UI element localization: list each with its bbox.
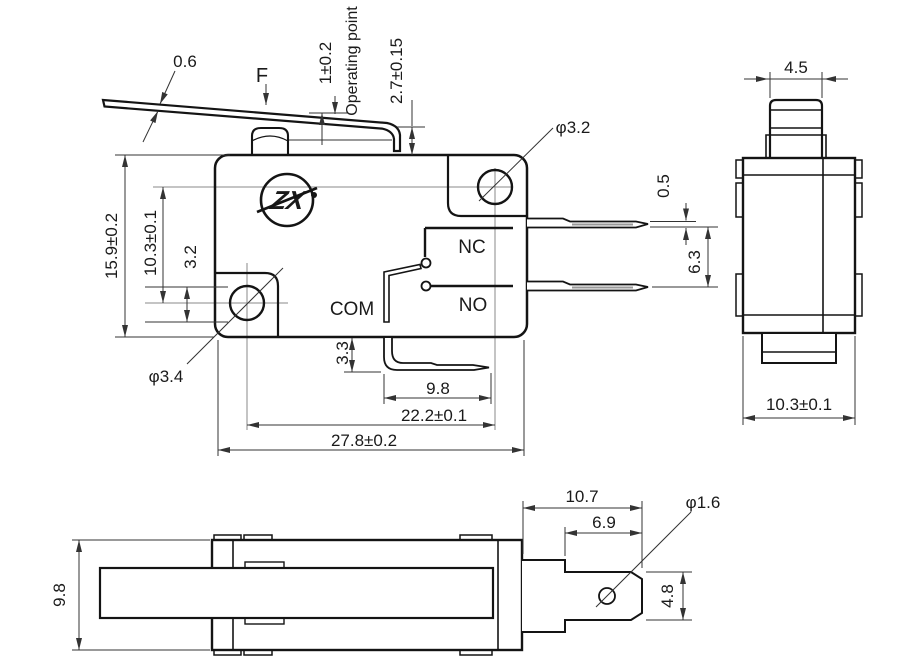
- dim-free-position: 2.7±0.15: [387, 38, 406, 104]
- no-terminal: [527, 282, 648, 291]
- label-com: COM: [330, 299, 374, 320]
- dim-top-hole: φ3.2: [556, 118, 591, 137]
- dim-blade-width: 4.8: [658, 584, 677, 608]
- dim-bottom-hole: φ3.4: [149, 367, 184, 386]
- dim-hole-offset: 3.2: [181, 245, 200, 269]
- dim-button-width: 4.5: [784, 58, 808, 77]
- dim-blade-length: 6.9: [592, 513, 616, 532]
- bottom-terminal: [522, 560, 642, 632]
- side-bottom-boss: [762, 333, 836, 363]
- dim-terminal-thickness: 0.5: [654, 174, 673, 198]
- micro-switch-drawing: ZX: [0, 0, 901, 672]
- dim-terminal-spacing: 6.3: [685, 250, 704, 274]
- front-dimension-lines: [115, 71, 718, 456]
- side-body: [736, 158, 862, 363]
- drawing-svg: ZX: [0, 0, 901, 672]
- contact-schematic: [384, 228, 513, 322]
- nc-terminal: [527, 219, 648, 228]
- brand-logo: ZX: [257, 174, 317, 226]
- force-label: F: [256, 65, 268, 87]
- label-nc: NC: [458, 237, 485, 258]
- front-view: ZX: [102, 6, 718, 456]
- no-contact-point: [422, 282, 431, 291]
- com-terminal: [384, 338, 489, 370]
- dim-body-thickness: 9.8: [50, 583, 69, 607]
- dim-com-length: 9.8: [426, 379, 450, 398]
- bottom-lever: [100, 568, 493, 618]
- dim-lever-thickness: 0.6: [173, 52, 197, 71]
- dim-body-depth: 10.3±0.1: [766, 395, 832, 414]
- dim-body-width: 27.8±0.2: [331, 431, 397, 450]
- logo-dot: [311, 192, 317, 198]
- dim-blade-hole: φ1.6: [686, 493, 721, 512]
- nc-contact-point: [422, 259, 431, 268]
- dim-terminal-length: 10.7: [565, 487, 598, 506]
- dim-hole-hspacing: 22.2±0.1: [401, 406, 467, 425]
- com-blade: [384, 265, 421, 323]
- label-no: NO: [459, 295, 488, 316]
- dim-hole-vspacing: 10.3±0.1: [141, 210, 160, 276]
- bottom-view: 9.8 10.7 6.9 φ1.6 4.8: [50, 487, 720, 655]
- dim-pretravel: 1±0.2: [316, 42, 335, 84]
- dim-terminal-drop: 3.3: [333, 341, 352, 365]
- operating-point-label: Operating point: [344, 6, 361, 116]
- dim-body-height: 15.9±0.2: [102, 213, 121, 279]
- side-view: 4.5 10.3±0.1: [736, 58, 862, 425]
- side-button: [766, 100, 826, 157]
- top-right-pad: [448, 156, 526, 216]
